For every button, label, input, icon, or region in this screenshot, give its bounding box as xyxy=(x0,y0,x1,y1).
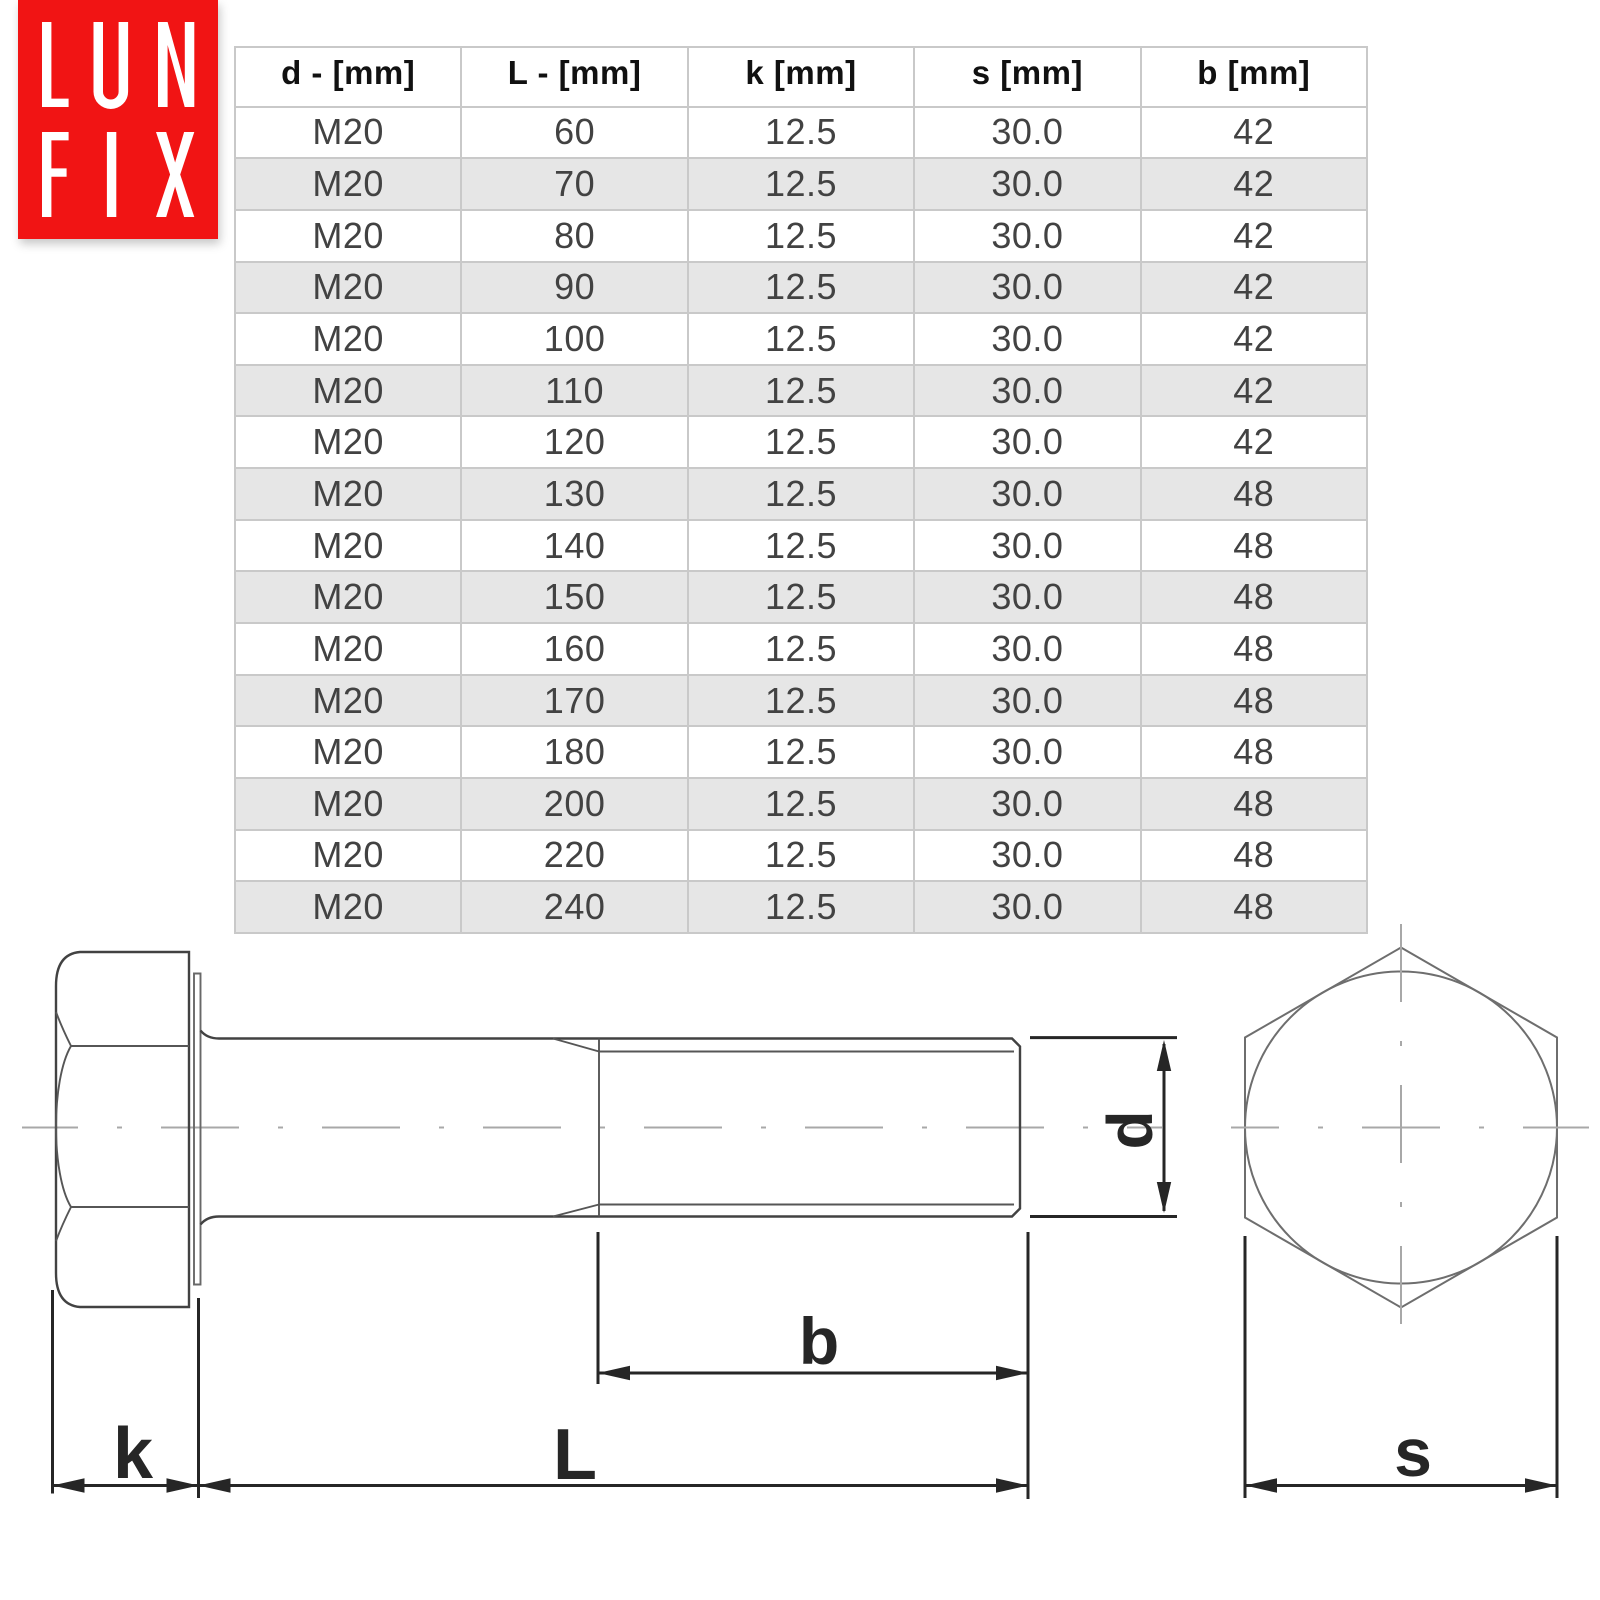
svg-text:d: d xyxy=(1094,1110,1166,1149)
svg-text:k: k xyxy=(113,1414,154,1494)
svg-text:s: s xyxy=(1394,1415,1432,1491)
svg-text:L: L xyxy=(553,1415,597,1495)
svg-text:b: b xyxy=(799,1304,839,1378)
